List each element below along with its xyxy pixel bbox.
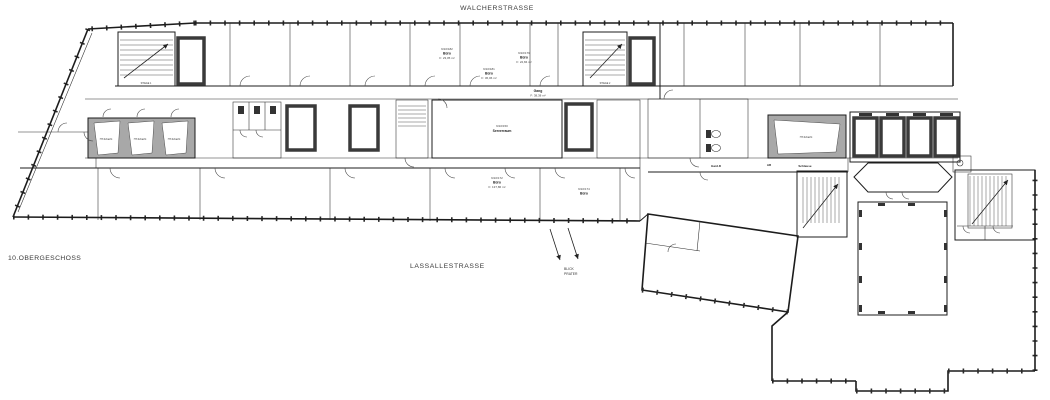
room-number: 9/10/172 [491,176,503,180]
room-name: Büro [443,52,451,56]
wc-block-right [648,99,748,158]
wc-fixture-2 [254,106,260,114]
elevator-bank-shaft-2 [881,118,904,156]
stair-1-treads [120,40,173,75]
door-arc [103,109,111,117]
elevator-bank-shaft-3 [908,118,931,156]
elevator-2-shaft [630,38,654,84]
elevator-bank-shaft-4 [935,118,958,156]
door-arc [300,76,310,86]
schleuse-label: Schleuse [798,164,812,168]
staircase-2 [583,32,654,86]
door-arc [700,172,708,180]
room-label-serverraum: 9/10/150 Serverraum [493,124,512,133]
stair-1-label: STIEGE 1 [141,82,152,85]
facade-left [13,29,88,217]
door-arc [555,168,565,178]
room-label-buero-a: 9/10/182 Büro F: 23,05 m² [439,47,454,60]
door-arc [625,168,635,178]
abstellraum-label: AR [767,163,772,167]
door-arc [505,168,515,178]
staircase-1 [118,32,204,86]
wc-fixture-3 [270,106,276,114]
ht-shaft-2-label: HT-Schacht [134,138,147,141]
room-label-gang: Gang F: 38,38 m² [530,89,545,98]
door-arc [540,76,550,86]
floor-title: 10.OBERGESCHOSS [8,255,81,262]
door-arc [256,130,263,137]
view-label-line1: BLICK [564,267,575,271]
door-arc [425,76,435,86]
wing-outer-facade [772,170,1035,391]
column-hall-columns [859,203,947,314]
wing-stair-direction-arrow [803,184,838,228]
door-arc [668,244,676,252]
toilet-1-bowl [712,131,721,138]
door-arc [886,192,893,199]
door-arc [171,109,179,117]
view-arrow-1 [550,229,560,260]
floor-plan-svg: WALCHERSTRASSE LASSALLESTRASSE 10.OBERGE… [0,0,1050,400]
door-arc [240,130,247,137]
room-number: 9/10/174 [578,187,590,191]
room-area: F: 137,86 m² [488,185,505,189]
door-arc [58,123,67,132]
room-area: F: 22,84 m² [516,60,531,64]
ht-shaft-3-label: HT-Schacht [168,138,181,141]
ht-shaft-4-label: HT-Schacht [800,136,813,139]
stair-1-direction-arrow [124,44,168,78]
door-arc [215,168,225,178]
elevator-shaft-a [287,106,315,150]
angled-office-block [642,214,798,312]
wc-fixture-1 [238,106,244,114]
room-label-buero-d: 9/10/172 Büro F: 137,86 m² [488,176,505,189]
stair-2-label: STIEGE 2 [600,82,611,85]
facade-left-inner [18,33,92,212]
room-label-buero-c: 9/10/179 Büro F: 22,84 m² [516,51,531,64]
southeast-wing [640,156,1035,391]
door-arc [137,109,145,117]
elevator-bank [850,112,960,162]
core-stair-treads [398,106,426,126]
room-number: 9/10/182 [441,47,453,51]
door-arc [470,76,480,86]
door-arc [445,168,455,178]
door-arc [993,226,1000,233]
room-area: F: 23,05 m² [439,56,454,60]
room-labels: 9/10/182 Büro F: 23,05 m² 9/10/181 Büro … [100,47,813,196]
room-number: 9/10/150 [496,124,508,128]
east-staircase-treads [970,176,1006,226]
wc-right-outline [648,99,748,158]
room-name: Büro [580,192,588,196]
room-area: F: 36,06 m² [481,76,496,80]
stair-2-direction-arrow [590,44,622,78]
door-arc [664,90,673,99]
door-arc [345,168,355,178]
door-arc [110,168,120,178]
elevator-1-shaft [178,38,204,84]
garderobe-label: Gard.D [711,164,722,168]
floorplan-canvas: WALCHERSTRASSE LASSALLESTRASSE 10.OBERGE… [0,0,1050,400]
room-name: Serverraum [493,129,512,133]
core-stair-outline [396,100,428,158]
core-room-east [597,100,640,158]
room-label-buero-e: 9/10/174 Büro [578,187,590,196]
toilet-2-tank [706,144,711,152]
door-arc [902,192,909,199]
column-hall [858,202,947,315]
room-name: Büro [485,72,493,76]
street-name-bottom: LASSALLESTRASSE [410,263,485,270]
view-arrow-2 [568,228,578,259]
room-number: 9/10/181 [483,67,495,71]
door-arc [365,76,375,86]
elevator-shaft-b [350,106,378,150]
view-label-line2: PRATER [564,272,578,276]
door-arc [240,76,250,86]
toilet-1-tank [706,130,711,138]
door-arc [405,158,414,167]
ht-shaft-1-label: HT-Schacht [100,138,113,141]
room-number: 9/10/179 [518,51,530,55]
elevator-shaft-c [566,104,592,150]
room-name: Büro [493,181,501,185]
street-name-top: WALCHERSTRASSE [460,5,534,12]
toilet-2-bowl [712,145,721,152]
wing-staircase-treads [803,177,839,223]
core-shafts-east [566,100,640,158]
core-shafts-center [287,100,428,158]
facade-bottom [13,217,640,221]
room-area: F: 38,38 m² [530,94,545,98]
elevator-bank-shaft-1 [854,118,877,156]
view-arrows [550,228,578,260]
room-name: Büro [520,56,528,60]
stair-2-treads [585,40,625,75]
room-label-buero-b: 9/10/181 Büro F: 36,06 m² [481,67,496,80]
door-arc [690,158,699,167]
east-staircase-outline [955,170,1035,240]
door-arc [963,226,970,233]
octagon-lobby [854,163,952,192]
room-name: Gang [534,89,543,93]
